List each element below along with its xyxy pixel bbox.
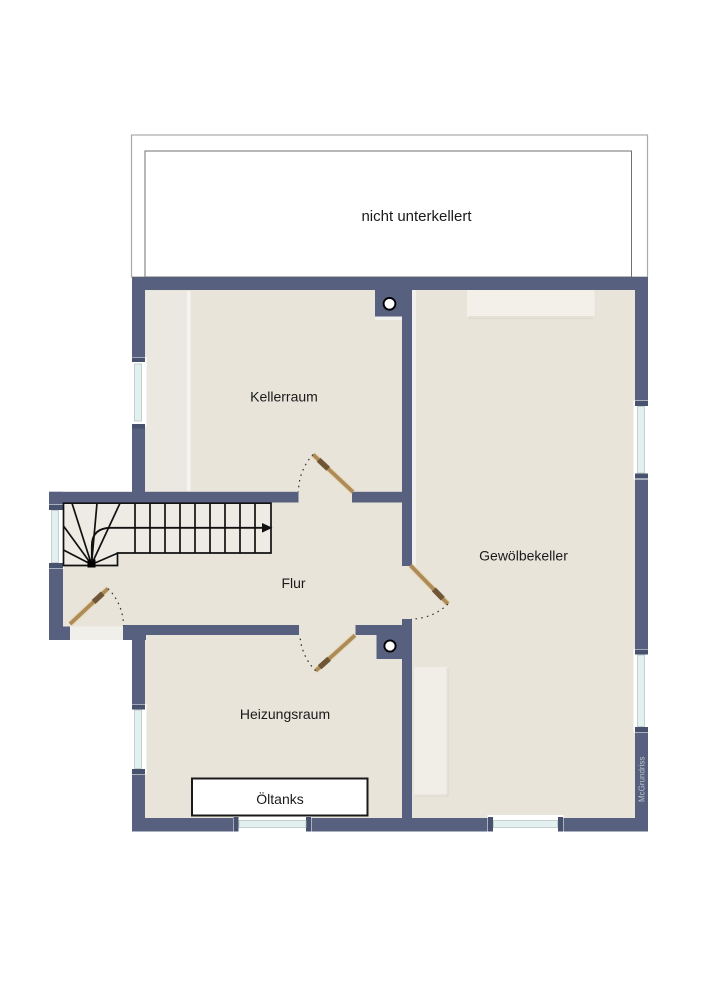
svg-text:Heizungsraum: Heizungsraum bbox=[240, 706, 330, 722]
svg-text:nicht unterkellert: nicht unterkellert bbox=[361, 208, 472, 225]
svg-text:Kellerraum: Kellerraum bbox=[250, 389, 318, 405]
svg-text:Gewölbekeller: Gewölbekeller bbox=[479, 548, 568, 564]
svg-text:Öltanks: Öltanks bbox=[256, 790, 303, 807]
svg-text:McGrundriss: McGrundriss bbox=[638, 757, 647, 802]
svg-text:Flur: Flur bbox=[281, 575, 305, 591]
